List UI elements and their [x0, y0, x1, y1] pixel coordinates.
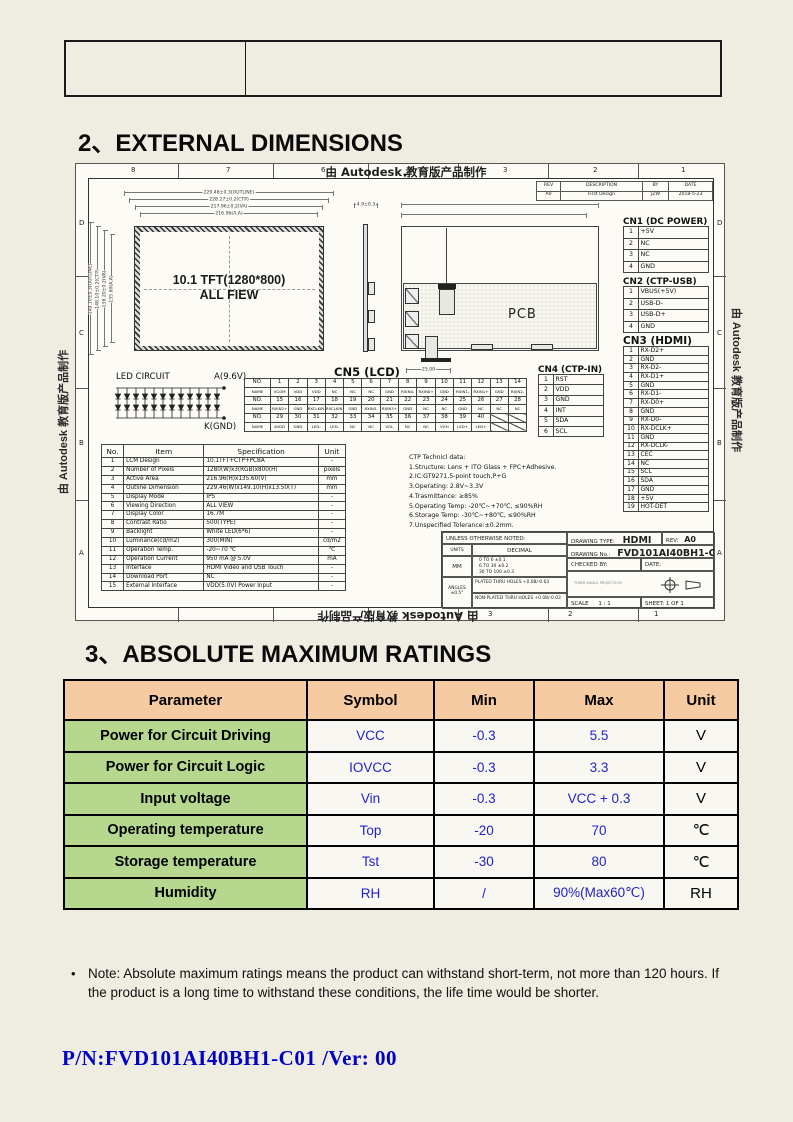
cn5-no: 32	[325, 414, 343, 423]
rating-unit: V	[664, 752, 738, 784]
dim-line: 216.96(A.A)	[140, 213, 318, 214]
spec-cell: 12	[102, 555, 124, 564]
spec-cell: -	[318, 493, 345, 502]
pin-row: 7RX-D0+	[624, 399, 709, 408]
rating-parameter: Operating temperature	[64, 815, 307, 847]
cn5-name: NC	[344, 387, 362, 396]
cn5-no: 6	[362, 379, 380, 388]
cn5-no: 15	[271, 396, 289, 405]
spec-row: 13InterfaceHDMI Video and USB Touch-	[102, 564, 346, 573]
rating-min: -30	[434, 846, 534, 878]
pin-name: RX-D1-	[639, 390, 709, 399]
pin-no: 10	[624, 425, 639, 434]
revision-header: BY	[643, 182, 669, 192]
cn5-no: 27	[490, 396, 508, 405]
pin-row: 2USB-D-	[624, 298, 709, 310]
pin-row: 2GND	[624, 355, 709, 364]
section-heading-absolute-maximum-ratings: 3、ABSOLUTE MAXIMUM RATINGS	[85, 634, 491, 669]
cn5-no: 37	[417, 414, 435, 423]
angles-tolerance: ±0.5°	[443, 591, 471, 596]
watermark-bottom: 由 Autodesk 教育版产品制作	[317, 608, 478, 624]
pcb-connector	[405, 288, 419, 304]
ctp-line: 1.Structure: Lens + ITO Glass + FPC+Adhe…	[409, 463, 556, 473]
third-angle-projection-icon	[658, 576, 704, 594]
spec-cell: Contrast Ratio	[124, 520, 204, 529]
pin-no: 6	[539, 426, 554, 436]
pin-row: 18+5V	[624, 494, 709, 503]
cn5-name: NC	[417, 422, 435, 431]
rating-unit: ℃	[664, 846, 738, 878]
front-view-label-line1: 10.1 TFT(1280*800)	[140, 273, 319, 288]
zone-letter: A	[79, 549, 84, 557]
cn5-no: 38	[435, 414, 453, 423]
cn5-no: 23	[417, 396, 435, 405]
ctp-line: 5.Operating Temp: -20℃~+70℃, ≤90%RH	[409, 502, 556, 512]
pin-row: 14NC	[624, 459, 709, 468]
tol-lines: 0 TO 6 ±0.16 TO 30 ±0.230 TO 100 ±0.3	[472, 556, 567, 577]
cn5-name: RXIN1-	[453, 387, 471, 396]
spec-cell: cd/m2	[318, 538, 345, 547]
cn5-name: RXIN3-	[362, 405, 380, 414]
spec-cell: Download Port	[124, 573, 204, 582]
spec-row: 8Contrast Ratio500(TYPE)-	[102, 520, 346, 529]
scale-label: SCALE	[571, 601, 589, 607]
cn5-no: 19	[344, 396, 362, 405]
revision-header: DESCRIPTION	[561, 182, 643, 192]
pin-name: RX-DCLK-	[639, 442, 709, 451]
spec-row: 6Viewing DirectionALL VIEW-	[102, 502, 346, 511]
cn1-pin-table: 1+5V2NC3NC4GND	[623, 226, 709, 273]
pin-name: GND	[639, 407, 709, 416]
rating-symbol: Vin	[307, 783, 434, 815]
pin-name: VDD	[554, 385, 604, 395]
dim-label: 25.00	[421, 367, 436, 372]
cn5-name: NC	[490, 405, 508, 414]
pcb-connector	[405, 311, 419, 327]
spec-cell: 1280(W)x3(RGB)x800(H)	[204, 466, 318, 475]
ratings-row: HumidityRH/90%(Max60℃)RH	[64, 878, 738, 910]
bottom-connector-base	[421, 358, 451, 362]
spec-cell: Viewing Direction	[124, 502, 204, 511]
cn5-no: 2	[289, 379, 307, 388]
spec-cell: Display Color	[124, 511, 204, 520]
rev-cell: REV: A0	[662, 532, 715, 545]
side-connector	[368, 310, 375, 323]
pin-row: 4RX-D1+	[624, 373, 709, 382]
rating-unit: ℃	[664, 815, 738, 847]
zone-number: 3	[488, 610, 492, 618]
pin-no: 14	[624, 459, 639, 468]
cn5-no: 17	[307, 396, 325, 405]
pin-no: 5	[624, 381, 639, 390]
pin-name: GND	[639, 321, 709, 333]
spec-cell: -	[318, 511, 345, 520]
cn5-name: RXIN1+	[472, 387, 490, 396]
spec-cell: pixels	[318, 466, 345, 475]
pin-no: 2	[539, 385, 554, 395]
cn5-name: NC	[325, 387, 343, 396]
spec-grid: No.ItemSpecificationUnit1LCM Design10.1T…	[101, 444, 346, 591]
dim-label: 136.20±0.2(VA)	[103, 270, 108, 307]
cn5-name: NC	[508, 405, 526, 414]
pin-no: 3	[624, 310, 639, 322]
ratings-row: Power for Circuit DrivingVCC-0.35.5V	[64, 720, 738, 752]
cn5-name: VCOM	[271, 387, 289, 396]
pin-name: SCL	[554, 426, 604, 436]
zone-letter: D	[717, 219, 722, 227]
pin-no: 1	[539, 375, 554, 385]
cn5-name: VDD	[307, 387, 325, 396]
spec-header-row: No.ItemSpecificationUnit	[102, 445, 346, 458]
pin-grid: 1RX-D2+2GND3RX-D2-4RX-D1+5GND6RX-D1-7RX-…	[623, 346, 709, 512]
frame-tick	[548, 608, 549, 622]
datasheet-page: { "page": { "heading_2": "2、EXTERNAL DIM…	[0, 0, 793, 1122]
spec-cell: 10	[102, 538, 124, 547]
cn5-name: GND	[399, 405, 417, 414]
pin-row: 6SCL	[539, 426, 604, 436]
led-anode-label: A(9.6V)	[214, 372, 246, 382]
pin-name: GND	[639, 486, 709, 495]
cn5-no	[508, 414, 526, 423]
pin-name: NC	[639, 459, 709, 468]
cn5-name: RXIN2-	[508, 387, 526, 396]
header-table-divider	[245, 42, 246, 95]
spec-row: 3Active Area216.96(H)x135.60(V)mm	[102, 475, 346, 484]
zone-letter: A	[717, 549, 722, 557]
pin-name: RX-D0+	[639, 399, 709, 408]
spec-header: No.	[102, 445, 124, 458]
pin-row: 11GND	[624, 433, 709, 442]
cn5-no: 8	[399, 379, 417, 388]
pin-row: 5GND	[624, 381, 709, 390]
cn5-no: 1	[271, 379, 289, 388]
dim-line: 149.10±0.3(OUTLINE)	[90, 222, 91, 355]
drawing-no-value: FVD101AI40BH1-C01	[617, 548, 715, 558]
pin-row: 4GND	[624, 321, 709, 333]
decimal-label: DECIMAL	[472, 544, 567, 556]
frame-tick	[714, 500, 726, 501]
cn4-pin-table: 1RST2VDD3GND4INT5SDA6SCL	[538, 374, 604, 437]
rating-unit: V	[664, 720, 738, 752]
zone-letter: C	[717, 329, 722, 337]
frame-tick	[273, 608, 274, 622]
pin-name: GND	[639, 381, 709, 390]
frame-tick	[638, 608, 639, 622]
spec-header: Item	[124, 445, 204, 458]
cn5-name: RXIN0-	[399, 387, 417, 396]
rating-symbol: RH	[307, 878, 434, 910]
cn5-no: 7	[380, 379, 398, 388]
section-heading-external-dimensions: 2、EXTERNAL DIMENSIONS	[78, 123, 403, 158]
dim-label: 135.60(A.A)	[110, 275, 115, 302]
dim-line: 229.48±0.3(OUTLINE)	[124, 192, 334, 193]
pin-grid: 1VBUS(+5V)2USB-D-3USB-D+4GND	[623, 286, 709, 333]
spec-cell: 300(MIN)	[204, 538, 318, 547]
cn5-no: 20	[362, 396, 380, 405]
spec-cell: IPS	[204, 493, 318, 502]
spec-cell: 216.96(H)x135.60(V)	[204, 475, 318, 484]
cn5-no: 9	[417, 379, 435, 388]
pin-name: GND	[554, 395, 604, 405]
pin-name: RST	[554, 375, 604, 385]
spec-cell: mA	[318, 555, 345, 564]
spec-cell: 229.46(W)x149.10(H)x13.50(T)	[204, 484, 318, 493]
cn5-row-label: NAME	[245, 387, 271, 396]
spec-cell: 14	[102, 573, 124, 582]
pin-name: INT	[554, 406, 604, 416]
zone-number: 7	[226, 166, 230, 174]
ratings-header: Parameter	[64, 680, 307, 720]
spec-cell: 4	[102, 484, 124, 493]
spec-cell: VDD(5.0V) Power Input	[204, 582, 318, 591]
cn5-no: 29	[271, 414, 289, 423]
cn5-name-row: NAMEAVDDGNDLED-LED-NCNCVGLNCNCVGHLED+LED…	[245, 422, 527, 431]
cn5-name: RXIN3+	[380, 405, 398, 414]
pin-name: RX-D2+	[639, 347, 709, 356]
pin-row: 12RX-DCLK-	[624, 442, 709, 451]
cn5-name: RXIN2+	[271, 405, 289, 414]
cn5-name: GND	[289, 422, 307, 431]
pin-grid: 1+5V2NC3NC4GND	[623, 226, 709, 273]
zone-number: 1	[654, 610, 658, 618]
rating-symbol: Top	[307, 815, 434, 847]
side-connector	[368, 338, 375, 351]
pin-no: 3	[624, 364, 639, 373]
cn5-no: 16	[289, 396, 307, 405]
ctp-line: 3.Operating: 2.8V~3.3V	[409, 482, 556, 492]
spec-cell: 950 mA @ 5.0V	[204, 555, 318, 564]
cn5-name: LED+	[472, 422, 490, 431]
spec-table: No.ItemSpecificationUnit1LCM Design10.1T…	[101, 444, 346, 591]
fpc-tail	[446, 228, 447, 286]
bottom-tab	[531, 344, 553, 350]
revision-row: A0First DesignJZW2018-5-23	[537, 191, 713, 201]
rating-parameter: Input voltage	[64, 783, 307, 815]
spec-cell: HDMI Video and USB Touch	[204, 564, 318, 573]
pin-row: 16SDA	[624, 477, 709, 486]
cn3-pin-table: 1RX-D2+2GND3RX-D2-4RX-D1+5GND6RX-D1-7RX-…	[623, 346, 709, 512]
cn5-name: VDD	[289, 387, 307, 396]
spec-cell: Active Area	[124, 475, 204, 484]
rating-parameter: Power for Circuit Driving	[64, 720, 307, 752]
frame-tick	[714, 276, 726, 277]
ratings-row: Storage temperatureTst-3080℃	[64, 846, 738, 878]
pin-name: RX-DCLK+	[639, 425, 709, 434]
side-view-dim: 4.9±0.3	[354, 204, 378, 205]
front-view-screen: 10.1 TFT(1280*800) ALL FIEW	[140, 232, 319, 346]
dim-line: 136.20±0.2(VA)	[104, 230, 105, 347]
pin-name: CEC	[639, 451, 709, 460]
frame-tick	[548, 164, 549, 178]
pin-no: 2	[624, 355, 639, 364]
pin-no: 4	[624, 261, 639, 273]
spec-header: Specification	[204, 445, 318, 458]
revision-header-row: REVDESCRIPTIONBYDATE	[537, 182, 713, 192]
led-grid-icon	[114, 382, 236, 424]
scale-value: 1 : 1	[598, 601, 610, 607]
pin-no: 17	[624, 486, 639, 495]
pin-row: 1RST	[539, 375, 604, 385]
revision-cell: JZW	[643, 191, 669, 201]
pin-no: 4	[624, 373, 639, 382]
cn5-row-label: NO.	[245, 414, 271, 423]
date-label: DATE:	[641, 558, 715, 571]
revision-cell: First Design	[561, 191, 643, 201]
rating-unit: RH	[664, 878, 738, 910]
pin-row: 2NC	[624, 238, 709, 250]
pin-row: 5SDA	[539, 416, 604, 426]
pin-name: USB-D+	[639, 310, 709, 322]
pin-row: 19HOT-DET	[624, 503, 709, 512]
dimension-drawing: 876321321DDCCBBAA 由 Autodesk 教育版产品制作 ▼ 由…	[75, 163, 725, 621]
zone-number: 8	[131, 166, 135, 174]
part-number: P/N:FVD101AI40BH1-C01 /Ver: 00	[62, 1046, 397, 1071]
pin-name: RX-D0-	[639, 416, 709, 425]
spec-cell: ℃	[318, 546, 345, 555]
cn5-name-row: NAMEVCOMVDDVDDNCNCNCGNDRXIN0-RXIN0+GNDRX…	[245, 387, 527, 396]
ratings-header: Min	[434, 680, 534, 720]
checked-by-label: CHECKED BY:	[567, 558, 641, 571]
spec-cell: 3	[102, 475, 124, 484]
spec-cell: -	[318, 502, 345, 511]
revision-grid: REVDESCRIPTIONBYDATEA0First DesignJZW201…	[536, 181, 713, 201]
cn5-name	[490, 422, 508, 431]
cn5-no: 33	[344, 414, 362, 423]
pin-name: SCL	[639, 468, 709, 477]
pin-grid: 1RST2VDD3GND4INT5SDA6SCL	[538, 374, 604, 437]
spec-cell: -	[318, 520, 345, 529]
projection-note: THIRD ANGLE PROJECTION	[574, 581, 622, 585]
pin-name: SDA	[639, 477, 709, 486]
bottom-tab	[471, 344, 493, 350]
pin-name: NC	[639, 250, 709, 262]
pin-name: USB-D-	[639, 298, 709, 310]
spec-cell: ALL VIEW	[204, 502, 318, 511]
mm-label: MM	[442, 556, 472, 577]
ratings-header: Max	[534, 680, 664, 720]
spec-cell: White LED(6*6)	[204, 529, 318, 538]
frame-tick	[178, 608, 179, 622]
cn5-no: 4	[325, 379, 343, 388]
cn5-no: 3	[307, 379, 325, 388]
scale-cell: SCALE 1 : 1	[567, 597, 641, 609]
spec-cell: Display Mode	[124, 493, 204, 502]
frame-tick	[76, 500, 88, 501]
pin-no: 16	[624, 477, 639, 486]
pin-no: 4	[539, 406, 554, 416]
dim-label: 216.96(A.A)	[214, 211, 243, 216]
pin-no: 8	[624, 407, 639, 416]
rating-min: -0.3	[434, 783, 534, 815]
cn5-row-label: NAME	[245, 405, 271, 414]
rev-value: A0	[684, 535, 696, 544]
unless-noted-label: UNLESS OTHERWISE NOTED:	[442, 532, 567, 544]
zone-number: 2	[568, 610, 572, 618]
spec-row: 10Luminance(cd/m2)300(MIN)cd/m2	[102, 538, 346, 547]
cn5-row-label: NAME	[245, 422, 271, 431]
cn5-name: GND	[490, 387, 508, 396]
pin-no: 19	[624, 503, 639, 512]
ctp-line: 7.Unspecified Tolerance:±0.2mm.	[409, 521, 556, 531]
side-connector	[368, 282, 375, 295]
cn5-grid: NO.1234567891011121314NAMEVCOMVDDVDDNCNC…	[244, 378, 527, 432]
zone-letter: B	[79, 439, 84, 447]
frame-tick	[178, 164, 179, 178]
cn5-no: 11	[453, 379, 471, 388]
rating-max: 3.3	[534, 752, 664, 784]
cn5-no: 31	[307, 414, 325, 423]
rating-parameter: Power for Circuit Logic	[64, 752, 307, 784]
pin-no: 2	[624, 298, 639, 310]
pin-no: 5	[539, 416, 554, 426]
spec-cell: 500(TYPE)	[204, 520, 318, 529]
spec-cell: Number of Pixels	[124, 466, 204, 475]
dims-top: 229.48±0.3(OUTLINE)228.27±0.2(CTP)217.96…	[121, 192, 337, 222]
cn5-no: 30	[289, 414, 307, 423]
spec-cell: 2	[102, 466, 124, 475]
pcb-connector	[405, 334, 419, 349]
rating-parameter: Humidity	[64, 878, 307, 910]
pin-no: 3	[539, 395, 554, 405]
cn5-no: 5	[344, 379, 362, 388]
frame-tick	[76, 388, 88, 389]
rating-max: 70	[534, 815, 664, 847]
spec-row: 14Download PortNC-	[102, 573, 346, 582]
rating-max: 90%(Max60℃)	[534, 878, 664, 910]
ratings-header: Symbol	[307, 680, 434, 720]
pin-row: 1+5V	[624, 227, 709, 239]
header-table	[64, 40, 722, 97]
sheet-label: SHEET: 1 OF 1	[641, 597, 715, 609]
watermark-right: 由 Autodesk 教育版产品制作	[729, 305, 745, 455]
rating-max: 80	[534, 846, 664, 878]
pin-name: +5V	[639, 227, 709, 239]
pin-no: 13	[624, 451, 639, 460]
spec-row: 1LCM Design10.1TFT+CTP+PCBA-	[102, 458, 346, 467]
cn5-row-label: NO.	[245, 379, 271, 388]
revision-header: DATE	[669, 182, 713, 192]
note-text: Note: Absolute maximum ratings means the…	[88, 964, 733, 1002]
cn5-name: NC	[344, 422, 362, 431]
dim-label: 4.9±0.3	[356, 202, 376, 207]
frame-tick	[76, 276, 88, 277]
spec-cell: Interface	[124, 564, 204, 573]
cn5-no: 13	[490, 379, 508, 388]
pin-no: 9	[624, 416, 639, 425]
spec-row: 9BacklightWhite LED(6*6)-	[102, 529, 346, 538]
pin-name: GND	[639, 433, 709, 442]
spec-cell: -	[318, 573, 345, 582]
pin-row: 2VDD	[539, 385, 604, 395]
spec-cell: LCM Design	[124, 458, 204, 467]
pin-no: 7	[624, 399, 639, 408]
units-label: UNITS	[442, 544, 472, 556]
cn5-no: 21	[380, 396, 398, 405]
rating-min: /	[434, 878, 534, 910]
cn5-name: AVDD	[271, 422, 289, 431]
pin-row: 4GND	[624, 261, 709, 273]
spec-cell: -	[318, 582, 345, 591]
pin-name: VBUS(+5V)	[639, 287, 709, 299]
cn5-name: NC	[417, 405, 435, 414]
cn5-no: 18	[325, 396, 343, 405]
dim-label: 148.10±0.2(CTP)	[96, 269, 101, 309]
cn5-row-label: NO.	[245, 396, 271, 405]
cn5-no: 40	[472, 414, 490, 423]
pin-row: 3RX-D2-	[624, 364, 709, 373]
rating-min: -20	[434, 815, 534, 847]
rating-parameter: Storage temperature	[64, 846, 307, 878]
